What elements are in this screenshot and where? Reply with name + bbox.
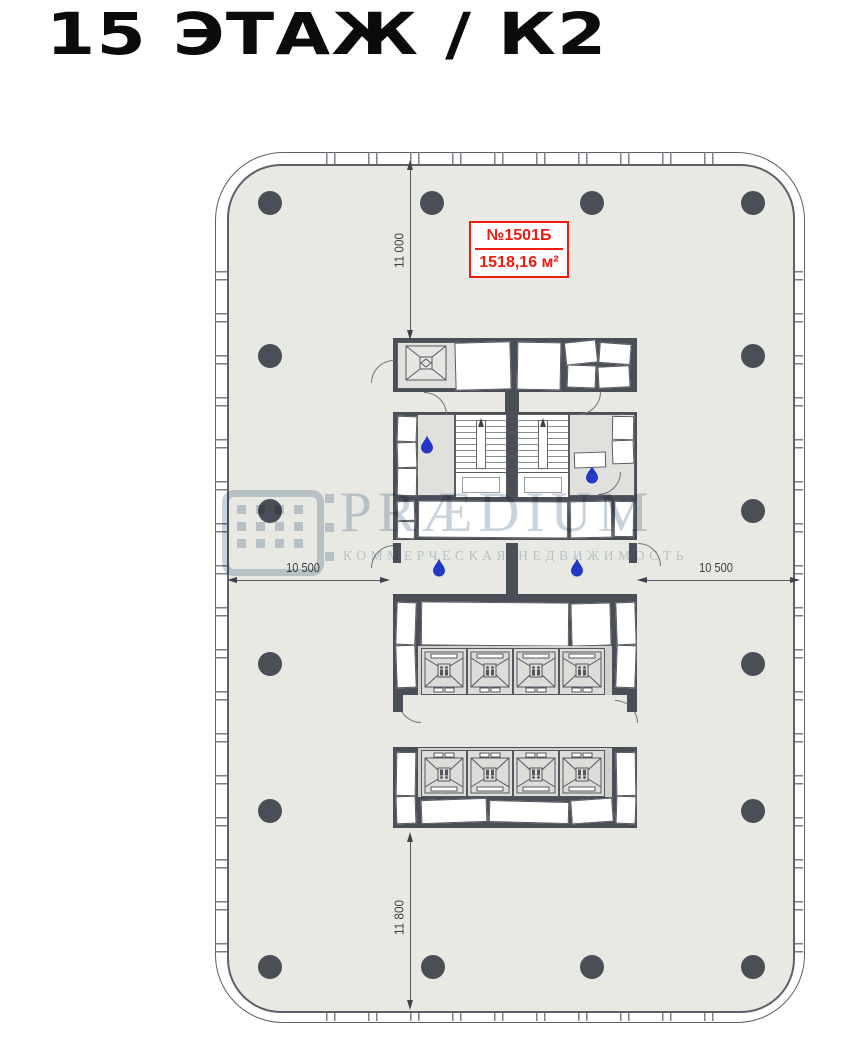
unit-number: №1501Б xyxy=(475,225,563,250)
shaft-void xyxy=(598,342,631,365)
shaft-void xyxy=(612,440,635,465)
structural-column xyxy=(258,799,282,823)
shaft-void xyxy=(489,800,570,824)
core-lobby-room-right xyxy=(570,501,613,539)
dimension-arrow xyxy=(790,577,800,583)
core-lobby-room xyxy=(418,500,568,538)
shaft-void xyxy=(597,365,630,389)
stair-landing-right xyxy=(517,472,569,498)
stair-rail xyxy=(476,420,486,469)
dimension-line-bottom xyxy=(410,836,411,1003)
dimension-value-top: 11 000 xyxy=(392,224,407,278)
shaft-void xyxy=(570,798,614,825)
shaft-void xyxy=(421,798,488,824)
elevator-cell xyxy=(467,750,513,797)
elevator-shaft-void xyxy=(570,602,611,646)
dimension-line-left xyxy=(230,580,387,581)
core-wall-stub xyxy=(393,543,401,563)
stair-rail xyxy=(538,420,548,469)
shaft-void xyxy=(397,416,418,443)
shaft-void xyxy=(397,521,416,540)
shaft-void xyxy=(615,602,636,646)
unit-area-value: 1518,16 м² xyxy=(471,250,567,274)
stairwell-left xyxy=(455,414,507,474)
shaft-void xyxy=(397,468,417,496)
dimension-value-left: 10 500 xyxy=(278,560,329,575)
structural-column xyxy=(580,191,604,215)
floor-plan: 11 000 11 800 10 500 10 500 №1501Б 1518,… xyxy=(0,0,868,1059)
shaft-void xyxy=(567,365,597,389)
structural-column xyxy=(741,799,765,823)
structural-column xyxy=(741,652,765,676)
dimension-arrow xyxy=(380,577,390,583)
structural-column xyxy=(258,499,282,523)
structural-column xyxy=(741,191,765,215)
dimension-arrow xyxy=(407,832,413,842)
structural-column xyxy=(420,191,444,215)
elevator-cell xyxy=(559,648,605,695)
dimension-arrow xyxy=(227,577,237,583)
dimension-line-right xyxy=(640,580,797,581)
shaft-void xyxy=(454,341,511,390)
elevator-cell xyxy=(467,648,513,695)
dimension-arrow xyxy=(637,577,647,583)
structural-column xyxy=(421,955,445,979)
stair-landing-left xyxy=(455,472,507,498)
core-wall-stub xyxy=(627,695,637,712)
core-wall-stub xyxy=(393,695,403,712)
elevator-cell xyxy=(513,750,559,797)
structural-column xyxy=(741,955,765,979)
shaft-void xyxy=(612,416,634,440)
elevator-shaft-void xyxy=(421,601,569,646)
elevator-cell xyxy=(421,750,467,797)
elevator-cell xyxy=(421,648,467,695)
wc-water-drop-icon xyxy=(432,558,446,577)
facade-mullions-top xyxy=(300,152,720,164)
elevator-cell xyxy=(559,750,605,797)
dimension-value-bottom: 11 800 xyxy=(392,891,407,945)
shaft-void xyxy=(395,602,416,646)
elevator-machine-icon xyxy=(404,344,448,389)
structural-column xyxy=(258,652,282,676)
shaft-void xyxy=(395,645,416,689)
structural-column xyxy=(741,499,765,523)
dimension-value-right: 10 500 xyxy=(691,560,742,575)
shaft-void xyxy=(397,501,416,522)
dimension-arrow xyxy=(407,1000,413,1010)
dimension-arrow xyxy=(407,160,413,170)
wc-water-drop-icon xyxy=(420,435,434,454)
core-wall-corridor-divider xyxy=(506,543,518,597)
dimension-line-top xyxy=(410,166,411,334)
shaft-void xyxy=(616,752,637,796)
structural-column xyxy=(258,955,282,979)
landing-outline xyxy=(462,477,500,493)
shaft-void xyxy=(397,442,418,469)
shaft-void xyxy=(517,342,562,391)
shaft-void xyxy=(614,501,635,537)
wc-water-drop-icon xyxy=(570,558,584,577)
structural-column xyxy=(258,344,282,368)
shaft-void xyxy=(574,451,607,468)
floor-plan-page: 15 ЭТАЖ / К2 xyxy=(0,0,868,1059)
wc-room-left xyxy=(417,414,455,496)
shaft-void xyxy=(564,339,598,365)
unit-area-label: №1501Б 1518,16 м² xyxy=(469,221,569,278)
core-wall-stub xyxy=(505,392,519,412)
structural-column xyxy=(258,191,282,215)
shaft-void xyxy=(615,645,636,689)
landing-outline xyxy=(524,477,562,493)
elevator-cell xyxy=(513,648,559,695)
core-wall-stub xyxy=(629,543,637,563)
facade-mullions-left xyxy=(215,245,227,965)
shaft-void xyxy=(616,796,637,825)
dimension-arrow xyxy=(407,330,413,340)
shaft-void xyxy=(396,752,417,796)
structural-column xyxy=(741,344,765,368)
stairwell-right xyxy=(517,414,569,474)
structural-column xyxy=(580,955,604,979)
shaft-void xyxy=(396,796,417,825)
